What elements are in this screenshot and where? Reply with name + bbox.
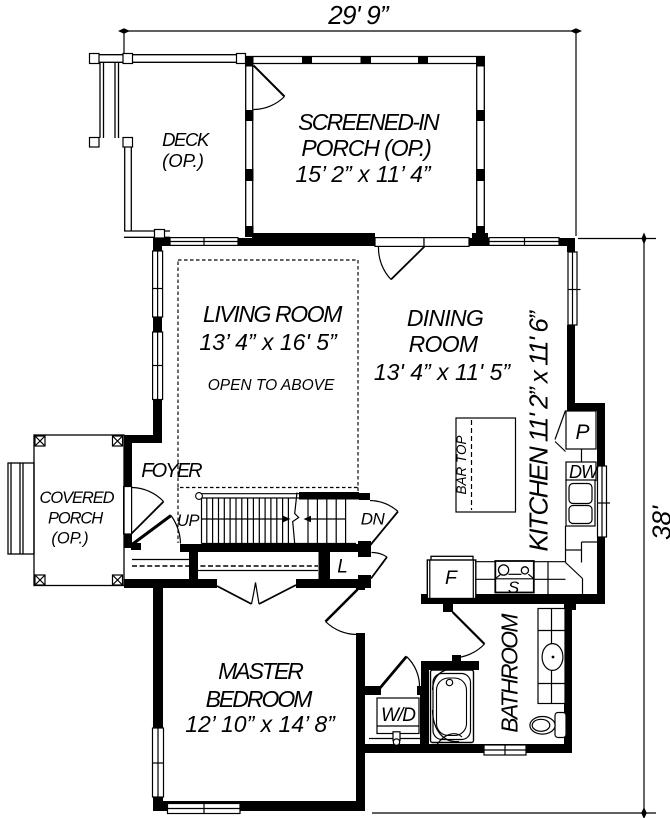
svg-text:W/D: W/D: [381, 705, 416, 726]
svg-text:LIVING ROOM: LIVING ROOM: [203, 301, 343, 327]
svg-text:13' 4” x 11' 5”: 13' 4” x 11' 5”: [374, 359, 512, 385]
svg-text:P: P: [575, 421, 589, 444]
svg-text:BAR TOP: BAR TOP: [454, 435, 469, 494]
svg-text:F: F: [445, 567, 458, 589]
svg-text:SCREENED-IN: SCREENED-IN: [298, 109, 440, 135]
svg-text:COVERED: COVERED: [40, 489, 115, 507]
svg-text:FOYER: FOYER: [141, 460, 202, 482]
svg-text:OPEN TO ABOVE: OPEN TO ABOVE: [208, 377, 335, 394]
svg-text:MASTER: MASTER: [218, 658, 303, 684]
svg-text:UP: UP: [177, 512, 199, 530]
svg-text:L: L: [337, 557, 348, 578]
svg-text:15’ 2” x 11’ 4”: 15’ 2” x 11’ 4”: [295, 161, 431, 187]
svg-text:13’ 4” x 16' 5”: 13’ 4” x 16' 5”: [199, 329, 338, 355]
svg-text:ROOM: ROOM: [409, 331, 479, 357]
svg-text:DINING: DINING: [407, 305, 483, 331]
svg-text:PORCH (OP.): PORCH (OP.): [301, 135, 431, 161]
svg-text:DW: DW: [569, 462, 600, 482]
svg-text:PORCH: PORCH: [48, 510, 103, 528]
svg-text:(OP.): (OP.): [162, 150, 204, 171]
svg-text:BATHROOM: BATHROOM: [497, 613, 523, 733]
svg-text:DN: DN: [361, 510, 386, 529]
svg-text:BEDROOM: BEDROOM: [206, 686, 314, 712]
svg-text:29' 9”: 29' 9”: [327, 0, 390, 30]
svg-text:12’ 10” x 14’ 8”: 12’ 10” x 14’ 8”: [185, 711, 336, 737]
svg-text:DECK: DECK: [162, 129, 211, 150]
svg-text:(OP.): (OP.): [51, 530, 88, 548]
svg-text:S: S: [508, 578, 520, 597]
svg-text:KITCHEN 11' 2” x 11' 6”: KITCHEN 11' 2” x 11' 6”: [524, 310, 554, 552]
svg-text:38': 38': [647, 505, 670, 540]
